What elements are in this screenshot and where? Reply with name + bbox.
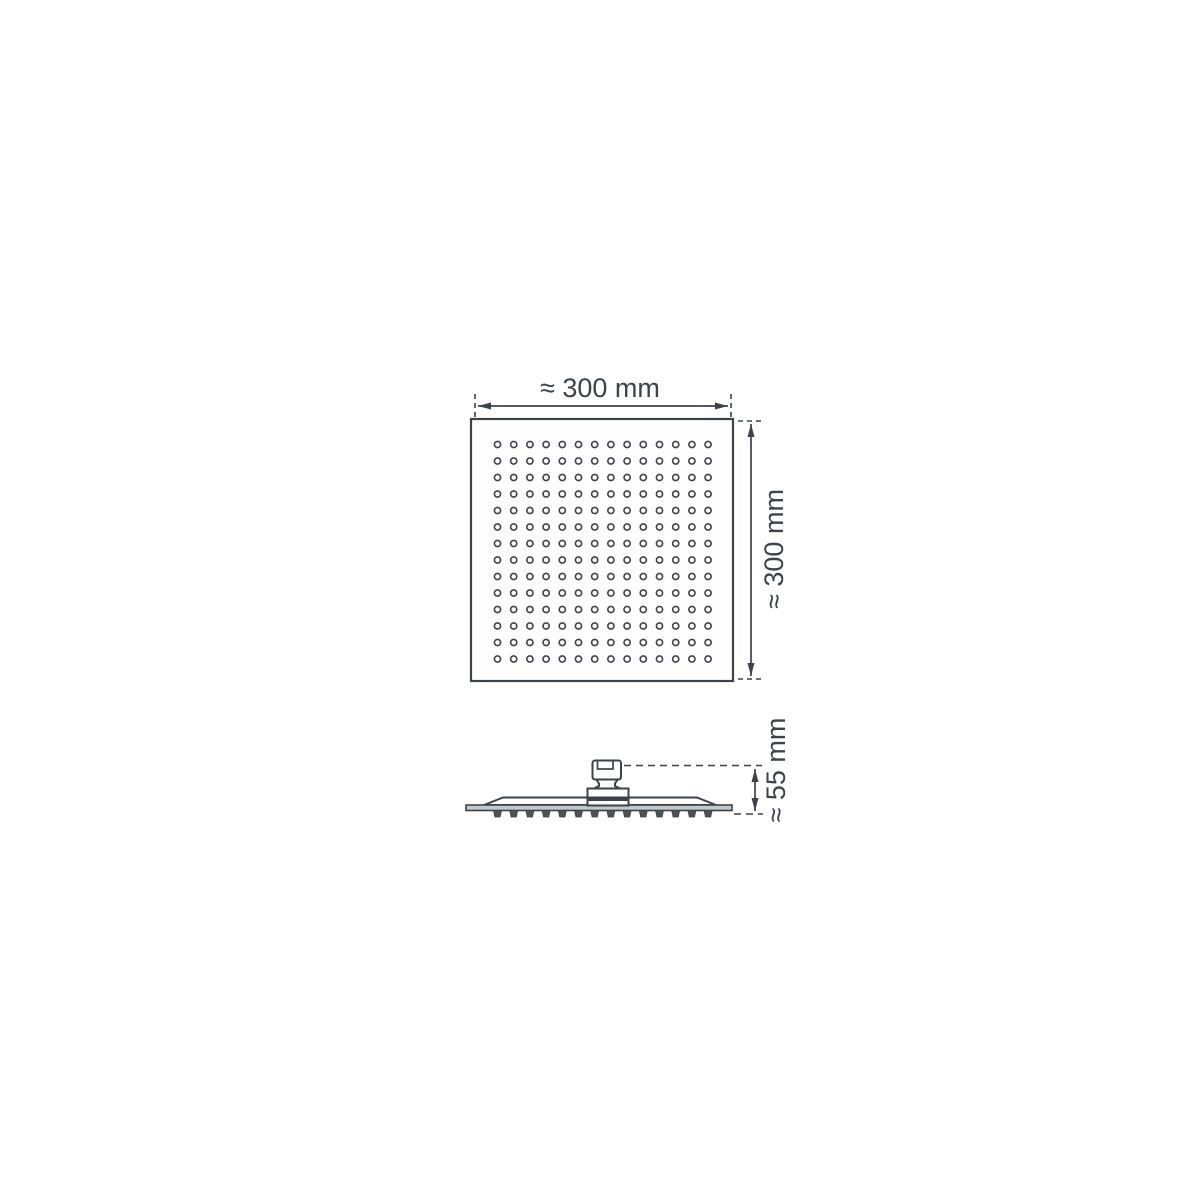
side-nozzle-tip bbox=[526, 811, 534, 818]
nozzle-hole bbox=[511, 557, 517, 563]
nozzle-hole bbox=[689, 590, 695, 596]
depth-dimension-label: ≈ 55 mm bbox=[761, 718, 791, 823]
nozzle-hole bbox=[543, 458, 549, 464]
nozzle-hole bbox=[494, 639, 500, 645]
nozzle-hole bbox=[543, 474, 549, 480]
nozzle-hole bbox=[527, 590, 533, 596]
nozzle-hole bbox=[511, 639, 517, 645]
width-dimension-label: ≈ 300 mm bbox=[540, 373, 660, 403]
nozzle-hole bbox=[656, 573, 662, 579]
nozzle-hole bbox=[527, 540, 533, 546]
connector-seal-band bbox=[588, 797, 629, 802]
nozzle-hole bbox=[559, 623, 565, 629]
side-view bbox=[466, 761, 732, 818]
nozzle-hole bbox=[511, 623, 517, 629]
nozzle-hole bbox=[689, 557, 695, 563]
nozzle-hole bbox=[575, 606, 581, 612]
nozzle-hole bbox=[673, 656, 679, 662]
nozzle-hole bbox=[640, 441, 646, 447]
nozzle-hole bbox=[689, 458, 695, 464]
nozzle-hole bbox=[673, 540, 679, 546]
nozzle-hole bbox=[575, 573, 581, 579]
nozzle-hole bbox=[511, 491, 517, 497]
nozzle-hole bbox=[543, 507, 549, 513]
nozzle-hole bbox=[527, 573, 533, 579]
nozzle-hole bbox=[640, 474, 646, 480]
nozzle-hole bbox=[575, 507, 581, 513]
nozzle-hole bbox=[494, 656, 500, 662]
nozzle-hole bbox=[624, 623, 630, 629]
height-dimension: ≈ 300 mm bbox=[738, 421, 789, 679]
nozzle-hole bbox=[575, 590, 581, 596]
nozzle-hole bbox=[656, 540, 662, 546]
technical-drawing: ≈ 300 mm ≈ 300 mm ≈ 55 mm bbox=[0, 0, 1200, 1200]
nozzle-hole bbox=[494, 474, 500, 480]
nozzle-hole bbox=[673, 474, 679, 480]
nozzle-hole bbox=[689, 606, 695, 612]
nozzle-hole bbox=[559, 656, 565, 662]
nozzle-hole bbox=[511, 441, 517, 447]
nozzle-hole bbox=[511, 474, 517, 480]
nozzle-hole bbox=[689, 573, 695, 579]
nozzle-hole bbox=[656, 606, 662, 612]
side-nozzle-tip bbox=[639, 811, 647, 818]
nozzle-hole bbox=[559, 606, 565, 612]
nozzle-hole bbox=[559, 590, 565, 596]
nozzle-hole bbox=[575, 441, 581, 447]
nozzle-hole bbox=[543, 639, 549, 645]
nozzle-hole bbox=[543, 557, 549, 563]
nozzle-hole bbox=[511, 590, 517, 596]
nozzle-hole bbox=[527, 524, 533, 530]
nozzle-hole bbox=[608, 639, 614, 645]
nozzle-hole bbox=[705, 540, 711, 546]
nozzle-hole bbox=[592, 540, 598, 546]
nozzle-hole bbox=[592, 441, 598, 447]
nozzle-hole bbox=[592, 458, 598, 464]
nozzle-hole bbox=[624, 540, 630, 546]
nozzle-hole bbox=[689, 524, 695, 530]
nozzle-hole bbox=[640, 639, 646, 645]
nozzle-hole bbox=[559, 557, 565, 563]
nozzle-hole bbox=[689, 623, 695, 629]
nozzle-hole bbox=[705, 491, 711, 497]
nozzle-hole bbox=[673, 441, 679, 447]
nozzle-hole bbox=[624, 491, 630, 497]
nozzle-hole bbox=[543, 656, 549, 662]
nozzle-hole bbox=[656, 507, 662, 513]
nozzle-hole bbox=[559, 639, 565, 645]
nozzle-hole bbox=[656, 557, 662, 563]
nozzle-hole bbox=[640, 524, 646, 530]
nozzle-hole bbox=[640, 491, 646, 497]
nozzle-hole bbox=[511, 507, 517, 513]
nozzle-hole bbox=[673, 623, 679, 629]
nozzle-hole bbox=[575, 458, 581, 464]
nozzle-hole bbox=[559, 474, 565, 480]
nozzle-hole bbox=[673, 639, 679, 645]
nozzle-hole bbox=[511, 540, 517, 546]
nozzle-hole bbox=[608, 524, 614, 530]
side-nozzle-tip bbox=[591, 811, 599, 818]
nozzle-hole bbox=[575, 623, 581, 629]
nozzle-hole bbox=[640, 573, 646, 579]
nozzle-hole bbox=[494, 507, 500, 513]
nozzle-hole bbox=[592, 639, 598, 645]
nozzle-hole bbox=[527, 507, 533, 513]
nozzle-hole bbox=[527, 557, 533, 563]
nozzle-hole bbox=[559, 507, 565, 513]
nozzle-hole bbox=[656, 590, 662, 596]
nozzle-hole bbox=[494, 623, 500, 629]
nozzle-hole bbox=[575, 491, 581, 497]
connector bbox=[588, 761, 629, 806]
nozzle-hole bbox=[494, 557, 500, 563]
nozzle-hole bbox=[640, 656, 646, 662]
side-nozzle-tip bbox=[575, 811, 583, 818]
nozzle-hole bbox=[494, 491, 500, 497]
nozzle-hole bbox=[608, 458, 614, 464]
nozzle-hole bbox=[624, 639, 630, 645]
nozzle-hole bbox=[624, 474, 630, 480]
nozzle-hole bbox=[494, 540, 500, 546]
nozzle-hole bbox=[624, 590, 630, 596]
nozzle-hole bbox=[494, 573, 500, 579]
nozzle-hole bbox=[575, 656, 581, 662]
nozzle-hole bbox=[559, 573, 565, 579]
nozzle-hole bbox=[656, 491, 662, 497]
nozzle-hole bbox=[705, 458, 711, 464]
nozzle-hole bbox=[592, 491, 598, 497]
nozzle-hole bbox=[689, 507, 695, 513]
nozzle-hole bbox=[689, 441, 695, 447]
nozzle-hole bbox=[575, 524, 581, 530]
nozzle-hole bbox=[494, 590, 500, 596]
nozzle-hole bbox=[608, 507, 614, 513]
nozzle-hole bbox=[624, 573, 630, 579]
nozzle-hole bbox=[608, 590, 614, 596]
nozzle-hole bbox=[511, 606, 517, 612]
nozzle-hole bbox=[656, 524, 662, 530]
nozzle-hole bbox=[705, 507, 711, 513]
nozzle-hole bbox=[575, 474, 581, 480]
nozzle-hole bbox=[673, 458, 679, 464]
nozzle-hole bbox=[559, 540, 565, 546]
nozzle-hole bbox=[608, 573, 614, 579]
nozzle-hole bbox=[543, 441, 549, 447]
nozzle-hole bbox=[592, 507, 598, 513]
nozzle-hole bbox=[511, 656, 517, 662]
side-nozzle-tip bbox=[672, 811, 680, 818]
nozzle-hole bbox=[624, 524, 630, 530]
nozzle-hole bbox=[592, 573, 598, 579]
nozzle-hole bbox=[656, 656, 662, 662]
nozzle-hole bbox=[640, 540, 646, 546]
height-dimension-label: ≈ 300 mm bbox=[759, 489, 789, 609]
nozzle-hole bbox=[624, 656, 630, 662]
nozzle-hole bbox=[656, 474, 662, 480]
width-dimension: ≈ 300 mm bbox=[475, 373, 731, 418]
nozzle-hole bbox=[511, 458, 517, 464]
nozzle-hole bbox=[608, 474, 614, 480]
nozzle-hole bbox=[543, 606, 549, 612]
nozzle-hole bbox=[575, 557, 581, 563]
nozzle-hole bbox=[640, 557, 646, 563]
nozzle-hole bbox=[656, 639, 662, 645]
side-nozzle-tip bbox=[704, 811, 712, 818]
nozzle-hole bbox=[624, 507, 630, 513]
nozzle-hole bbox=[673, 507, 679, 513]
nozzle-hole bbox=[689, 491, 695, 497]
nozzle-hole bbox=[527, 606, 533, 612]
nozzle-hole bbox=[624, 557, 630, 563]
nozzle-hole bbox=[527, 458, 533, 464]
nozzle-hole bbox=[624, 458, 630, 464]
nozzle-hole bbox=[608, 606, 614, 612]
nozzle-hole bbox=[543, 491, 549, 497]
nozzle-hole bbox=[559, 458, 565, 464]
nozzle-hole bbox=[705, 573, 711, 579]
nozzle-hole bbox=[608, 540, 614, 546]
nozzle-hole bbox=[592, 524, 598, 530]
nozzle-hole bbox=[559, 491, 565, 497]
nozzle-hole bbox=[689, 639, 695, 645]
nozzle-hole bbox=[608, 441, 614, 447]
side-nozzle-tip bbox=[542, 811, 550, 818]
nozzle-hole bbox=[543, 540, 549, 546]
nozzle-hole bbox=[494, 441, 500, 447]
nozzle-hole bbox=[705, 524, 711, 530]
nozzle-hole bbox=[527, 441, 533, 447]
nozzle-hole bbox=[511, 573, 517, 579]
nozzle-hole bbox=[608, 623, 614, 629]
nozzle-hole bbox=[673, 573, 679, 579]
nozzle-hole bbox=[705, 656, 711, 662]
nozzle-hole bbox=[608, 656, 614, 662]
nozzle-hole bbox=[527, 656, 533, 662]
side-nozzles bbox=[494, 811, 713, 818]
side-nozzle-tip bbox=[494, 811, 502, 818]
nozzle-hole bbox=[559, 524, 565, 530]
nozzle-hole bbox=[640, 623, 646, 629]
nozzle-hole bbox=[705, 623, 711, 629]
nozzle-hole bbox=[689, 656, 695, 662]
nozzle-hole bbox=[559, 441, 565, 447]
nozzle-hole bbox=[527, 623, 533, 629]
nozzle-hole bbox=[673, 491, 679, 497]
nozzle-hole bbox=[673, 557, 679, 563]
nozzle-hole bbox=[592, 557, 598, 563]
nozzle-hole bbox=[705, 441, 711, 447]
nozzle-hole bbox=[543, 590, 549, 596]
nozzle-hole bbox=[527, 474, 533, 480]
nozzle-hole bbox=[656, 458, 662, 464]
nozzle-hole bbox=[511, 524, 517, 530]
nozzle-hole bbox=[592, 590, 598, 596]
nozzle-hole bbox=[575, 639, 581, 645]
nozzle-hole bbox=[592, 656, 598, 662]
top-view bbox=[471, 419, 733, 681]
nozzle-hole bbox=[543, 623, 549, 629]
side-nozzle-tip bbox=[510, 811, 518, 818]
nozzle-hole bbox=[640, 458, 646, 464]
side-nozzle-tip bbox=[558, 811, 566, 818]
nozzle-hole bbox=[673, 524, 679, 530]
nozzle-hole bbox=[705, 590, 711, 596]
nozzle-hole bbox=[527, 491, 533, 497]
nozzle-hole bbox=[494, 606, 500, 612]
nozzle-hole bbox=[705, 606, 711, 612]
nozzle-hole bbox=[673, 606, 679, 612]
nozzle-hole bbox=[575, 540, 581, 546]
nozzle-hole bbox=[608, 557, 614, 563]
nozzle-hole bbox=[592, 474, 598, 480]
nozzle-hole bbox=[673, 590, 679, 596]
nozzle-hole bbox=[656, 623, 662, 629]
nozzle-hole bbox=[494, 458, 500, 464]
nozzle-hole bbox=[689, 474, 695, 480]
side-nozzle-tip bbox=[688, 811, 696, 818]
nozzle-hole bbox=[640, 590, 646, 596]
nozzle-hole bbox=[705, 639, 711, 645]
nozzle-hole bbox=[656, 441, 662, 447]
nozzle-hole bbox=[705, 474, 711, 480]
nozzle-hole bbox=[640, 606, 646, 612]
nozzle-hole bbox=[640, 507, 646, 513]
nozzle-hole bbox=[608, 491, 614, 497]
nozzle-hole bbox=[592, 623, 598, 629]
nozzle-hole bbox=[527, 639, 533, 645]
nozzle-hole bbox=[689, 540, 695, 546]
side-nozzle-tip bbox=[623, 811, 631, 818]
nozzle-hole bbox=[705, 557, 711, 563]
nozzle-hole bbox=[543, 524, 549, 530]
nozzle-hole bbox=[592, 606, 598, 612]
nozzle-hole bbox=[543, 573, 549, 579]
nozzle-hole bbox=[624, 606, 630, 612]
nozzle-hole bbox=[494, 524, 500, 530]
nozzle-hole bbox=[624, 441, 630, 447]
side-nozzle-tip bbox=[607, 811, 615, 818]
side-nozzle-tip bbox=[656, 811, 664, 818]
